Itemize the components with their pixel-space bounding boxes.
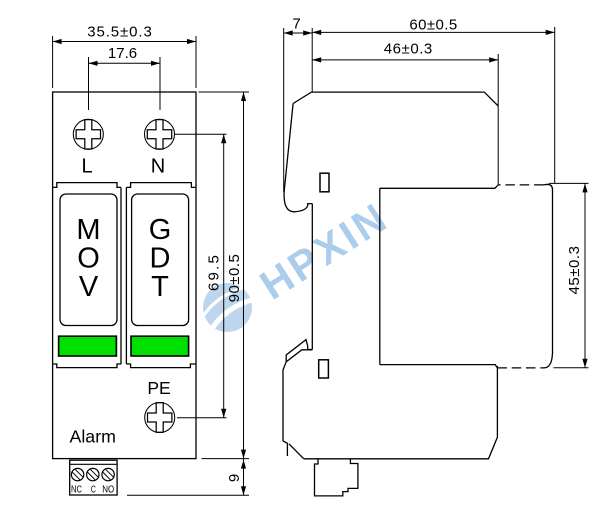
svg-text:90±0.5: 90±0.5 [226,254,243,303]
svg-text:G: G [149,214,172,246]
svg-text:35.5±0.3: 35.5±0.3 [87,24,152,41]
svg-text:O: O [77,242,100,274]
svg-text:60±0.5: 60±0.5 [409,16,457,33]
svg-text:N: N [151,156,165,178]
svg-text:M: M [76,214,100,246]
svg-text:17.6: 17.6 [108,45,137,62]
svg-text:C: C [91,485,96,496]
svg-text:NC: NC [71,485,82,496]
svg-text:V: V [79,271,99,303]
svg-text:NO: NO [102,485,114,496]
svg-text:9: 9 [226,474,243,482]
svg-text:L: L [81,156,92,178]
svg-text:Alarm: Alarm [70,427,116,447]
svg-text:46±0.3: 46±0.3 [384,40,433,57]
svg-text:45±0.3: 45±0.3 [566,245,583,294]
svg-text:D: D [150,242,171,274]
svg-text:7: 7 [292,16,300,33]
svg-text:T: T [151,271,169,303]
svg-text:69.5: 69.5 [206,253,223,291]
svg-text:PE: PE [147,378,170,398]
